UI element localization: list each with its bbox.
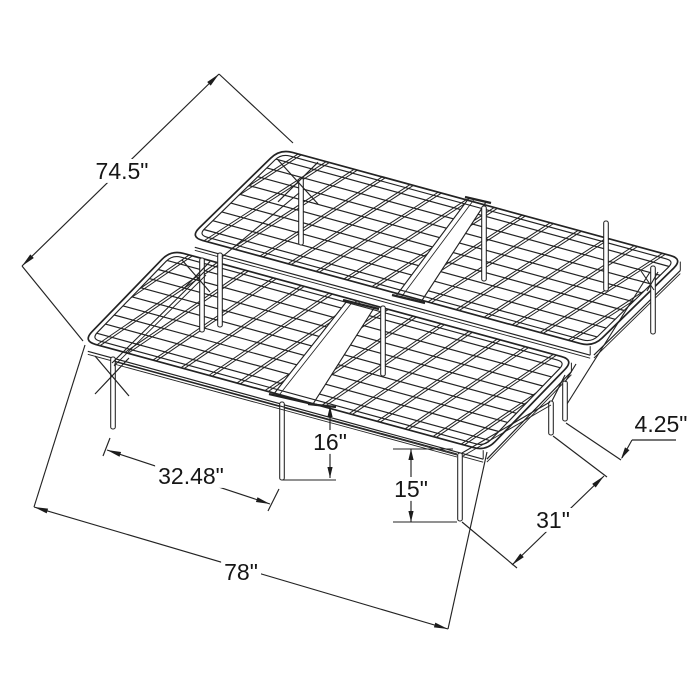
- svg-text:16": 16": [313, 429, 347, 455]
- svg-text:74.5": 74.5": [96, 158, 149, 184]
- svg-text:4.25": 4.25": [635, 411, 688, 437]
- svg-text:78": 78": [224, 559, 258, 585]
- svg-text:31": 31": [536, 507, 570, 533]
- svg-text:15": 15": [394, 476, 428, 502]
- svg-text:32.48": 32.48": [158, 463, 224, 489]
